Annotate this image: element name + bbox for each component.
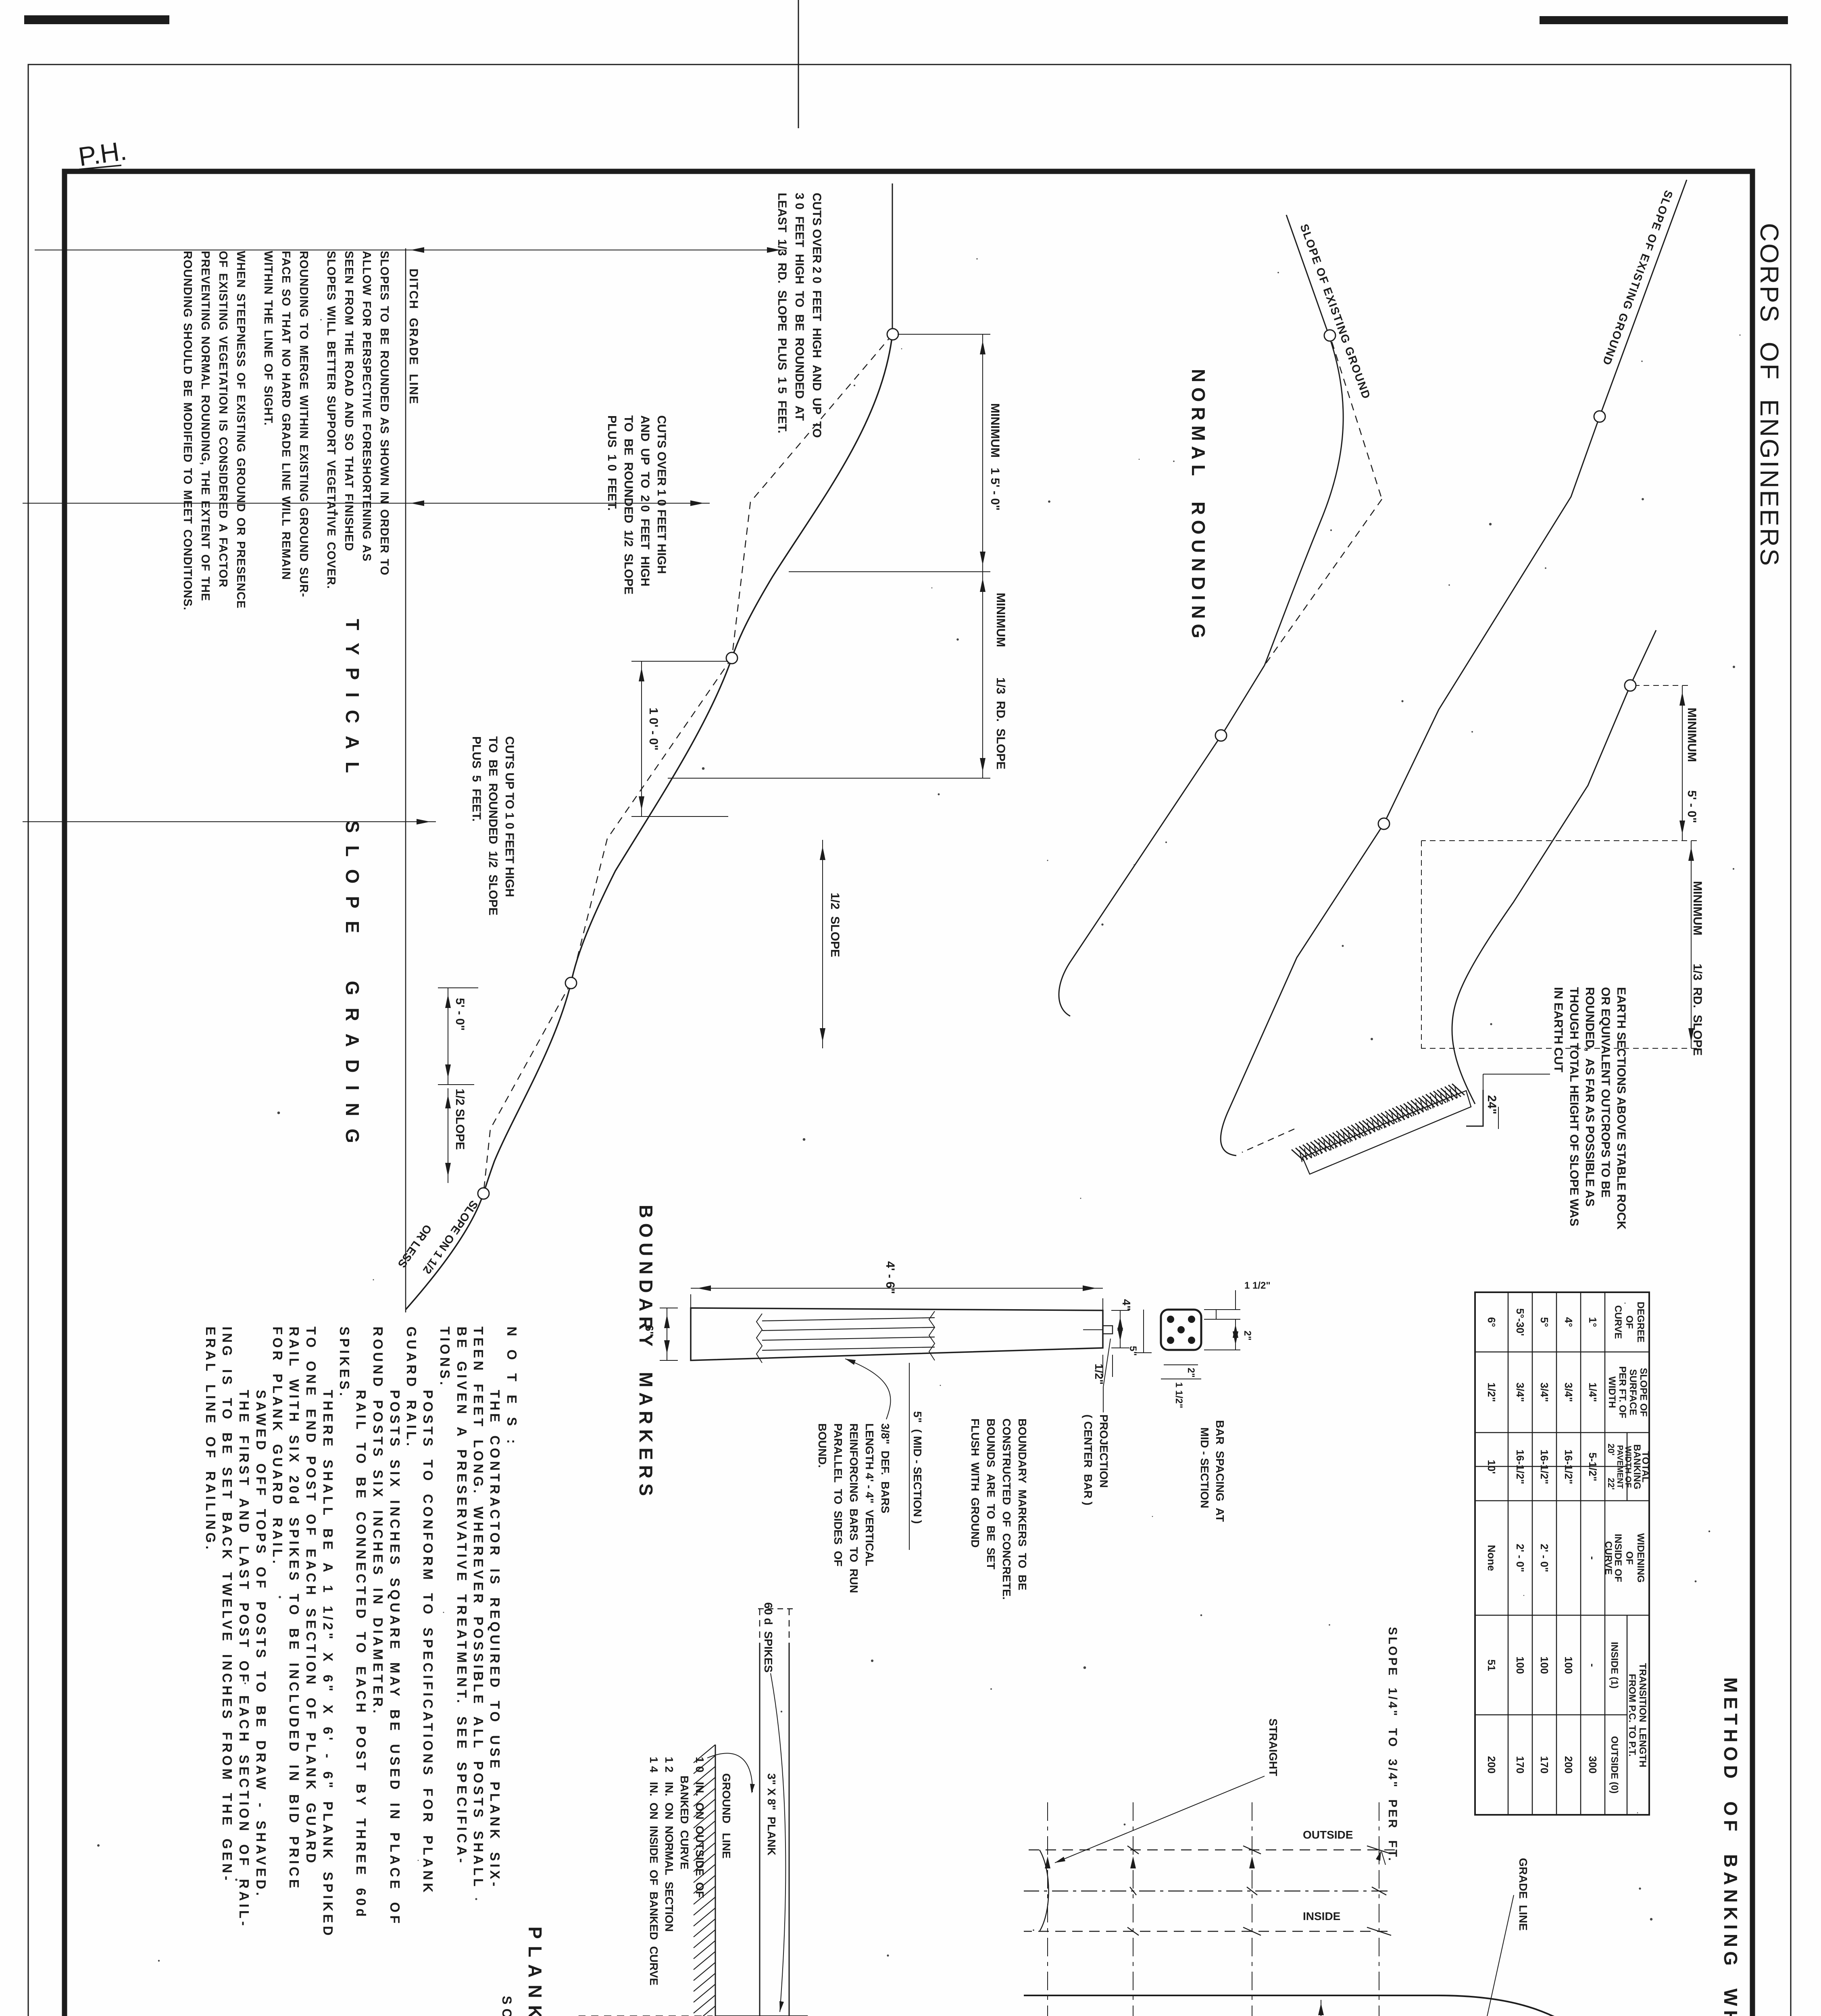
svg-text:1/2": 1/2" — [1486, 1383, 1498, 1402]
svg-text:OUTSIDE: OUTSIDE — [1303, 1829, 1353, 1841]
svg-text:3/4": 3/4" — [1538, 1383, 1550, 1402]
svg-text:PER FT. OF: PER FT. OF — [1617, 1366, 1628, 1418]
svg-text:6°: 6° — [1486, 1317, 1498, 1327]
svg-text:3" X 8" PLANK: 3" X 8" PLANK — [765, 1773, 778, 1856]
svg-text:None: None — [1486, 1545, 1498, 1571]
svg-text:OR EQUIVALENT OUTCROPS TO BE: OR EQUIVALENT OUTCROPS TO BE — [1599, 987, 1612, 1198]
svg-text:TO BE ROUNDED 1/2 SLOPE: TO BE ROUNDED 1/2 SLOPE — [622, 415, 635, 595]
svg-text:AND UP TO 2 0 FEET HIGH: AND UP TO 2 0 FEET HIGH — [638, 415, 652, 587]
svg-text:BANKING: BANKING — [1631, 1444, 1642, 1489]
svg-text:DITCH GRADE LINE: DITCH GRADE LINE — [407, 269, 420, 405]
svg-text:TO ONE END POST OF EACH SECTIO: TO ONE END POST OF EACH SECTION OF PLANK… — [304, 1327, 319, 1866]
svg-text:CONSTRUCTED OF CONCRETE.: CONSTRUCTED OF CONCRETE. — [1000, 1418, 1013, 1600]
svg-text:( CENTER BAR ): ( CENTER BAR ) — [1082, 1414, 1094, 1506]
svg-text:51: 51 — [1486, 1660, 1498, 1671]
svg-text:5": 5" — [1127, 1346, 1138, 1356]
svg-text:10': 10' — [1486, 1460, 1498, 1474]
svg-text:PLUS 5 FEET.: PLUS 5 FEET. — [470, 736, 483, 822]
svg-text:OF: OF — [1624, 1315, 1635, 1329]
svg-text:ING IS TO BE SET BACK TWELVE I: ING IS TO BE SET BACK TWELVE INCHES FROM… — [220, 1327, 235, 1883]
svg-text:THE CONTRACTOR IS REQUIRED TO: THE CONTRACTOR IS REQUIRED TO USE PLANK … — [488, 1327, 502, 1889]
svg-text:IN EARTH CUT: IN EARTH CUT — [1552, 987, 1565, 1073]
svg-text:SURFACE: SURFACE — [1627, 1369, 1638, 1416]
svg-text:5' - 0": 5' - 0" — [453, 998, 467, 1031]
svg-text:20': 20' — [1606, 1443, 1616, 1456]
svg-text:TO BE ROUNDED 1/2 SLOPE: TO BE ROUNDED 1/2 SLOPE — [486, 736, 500, 916]
svg-text:WIDTH OF: WIDTH OF — [1623, 1446, 1633, 1488]
svg-text:ERAL LINE OF RAILING.: ERAL LINE OF RAILING. — [203, 1327, 218, 1552]
svg-text:1/2": 1/2" — [1093, 1364, 1105, 1385]
svg-text:170: 170 — [1538, 1756, 1550, 1773]
svg-text:CURVE: CURVE — [1613, 1305, 1623, 1339]
svg-text:OF EXISTING VEGETATION IS CONS: OF EXISTING VEGETATION IS CONSIDERED A F… — [217, 251, 229, 587]
svg-text:N O T E S :: N O T E S : — [504, 1327, 519, 1447]
svg-text:INSIDE OF: INSIDE OF — [1613, 1534, 1623, 1582]
svg-text:EARTH SECTIONS ABOVE STABLE RO: EARTH SECTIONS ABOVE STABLE ROCK — [1615, 987, 1628, 1230]
svg-text:170: 170 — [1514, 1756, 1526, 1773]
svg-text:BOUND.: BOUND. — [816, 1423, 829, 1468]
svg-text:5' - 0": 5' - 0" — [1685, 790, 1698, 823]
svg-text:4°: 4° — [1563, 1317, 1575, 1327]
svg-text:FROM P.C. TO P.T.: FROM P.C. TO P.T. — [1627, 1674, 1638, 1756]
svg-text:6": 6" — [643, 1325, 656, 1337]
svg-text:24": 24" — [1485, 1095, 1498, 1114]
svg-text:PLUS 1 0 FEET.: PLUS 1 0 FEET. — [605, 415, 619, 511]
svg-text:POSTS TO CONFORM TO SPECIFICAT: POSTS TO CONFORM TO SPECIFICATIONS FOR P… — [421, 1327, 435, 1895]
svg-text:LENGTH 4' - 4" VERTICAL: LENGTH 4' - 4" VERTICAL — [863, 1423, 876, 1566]
svg-text:1/3 RD. SLOPE: 1/3 RD. SLOPE — [1691, 964, 1704, 1056]
svg-text:1 4 IN. ON INSIDE OF BAN: 1 4 IN. ON INSIDE OF BANKED CURVE — [648, 1757, 660, 1985]
svg-text:CURVE: CURVE — [1603, 1541, 1614, 1575]
svg-text:1 1/2": 1 1/2" — [1244, 1280, 1271, 1291]
svg-text:BOUNDS ARE TO BE SET: BOUNDS ARE TO BE SET — [985, 1418, 997, 1569]
svg-text:16-1/2": 16-1/2" — [1538, 1450, 1550, 1484]
svg-text:STRAIGHT: STRAIGHT — [1267, 1718, 1279, 1776]
svg-text:5°: 5° — [1538, 1317, 1550, 1327]
svg-text:ROUNDED, AS FAR AS POSSIBLE A: ROUNDED, AS FAR AS POSSIBLE AS — [1583, 987, 1596, 1207]
svg-text:200: 200 — [1486, 1756, 1498, 1773]
svg-text:FOR PLANK GUARD RAIL.: FOR PLANK GUARD RAIL. — [270, 1327, 285, 1566]
svg-text:DEGREE: DEGREE — [1635, 1302, 1646, 1342]
svg-text:PREVENTING NORMAL ROUNDING, TH: PREVENTING NORMAL ROUNDING, THE EXTENT O… — [199, 251, 212, 601]
svg-text:16-1/2": 16-1/2" — [1514, 1450, 1526, 1484]
svg-text:SPIKES.: SPIKES. — [337, 1327, 352, 1399]
svg-text:SLOPES TO BE ROUNDED AS SHOWN: SLOPES TO BE ROUNDED AS SHOWN IN ORDER T… — [378, 251, 391, 576]
svg-text:FLUSH WITH GROUND: FLUSH WITH GROUND — [969, 1418, 981, 1547]
svg-text:THOUGH TOTAL HEIGHT OF SLOPE W: THOUGH TOTAL HEIGHT OF SLOPE WAS — [1567, 987, 1581, 1226]
svg-text:MID - SECTION: MID - SECTION — [1198, 1427, 1211, 1508]
svg-text:ROUND POSTS SIX INCHES IN DIAM: ROUND POSTS SIX INCHES IN DIAMETER. — [371, 1327, 385, 1716]
svg-text:PARALLEL TO SIDES OF: PARALLEL TO SIDES OF — [832, 1423, 844, 1566]
svg-text:CUTS OVER 2 0 FEET HIGH AND: CUTS OVER 2 0 FEET HIGH AND UP TO — [810, 193, 823, 438]
svg-text:60 d SPIKES: 60 d SPIKES — [762, 1602, 775, 1672]
svg-text:-: - — [1587, 1664, 1599, 1667]
svg-text:3/4": 3/4" — [1563, 1383, 1575, 1402]
svg-text:THE FIRST AND LAST POST OF EAC: THE FIRST AND LAST POST OF EACH SECTION … — [237, 1327, 252, 1929]
svg-text:RAIL TO BE CONNECTED TO EACH P: RAIL TO BE CONNECTED TO EACH POST BY THR… — [354, 1327, 369, 1920]
svg-text:TRANSITION LENGTH: TRANSITION LENGTH — [1637, 1663, 1648, 1768]
svg-text:CORPS OF ENGINEERS: CORPS OF ENGINEERS — [1755, 223, 1784, 566]
svg-text:5°-30': 5°-30' — [1514, 1308, 1526, 1336]
svg-text:300: 300 — [1587, 1756, 1599, 1773]
svg-text:ROUNDING TO MERGE WITHIN EXIST: ROUNDING TO MERGE WITHIN EXISTING GROUND… — [297, 251, 310, 598]
svg-text:WIDENING: WIDENING — [1635, 1533, 1646, 1583]
svg-text:WIDTH: WIDTH — [1606, 1377, 1617, 1408]
svg-text:INSIDE: INSIDE — [1303, 1910, 1340, 1922]
svg-text:POSTS SIX INCHES SQUARE MAY BE: POSTS SIX INCHES SQUARE MAY BE USED IN P… — [388, 1327, 402, 1926]
svg-text:-: - — [1587, 1556, 1599, 1560]
svg-text:2' - 0": 2' - 0" — [1514, 1544, 1526, 1572]
svg-text:1/2 SLOPE: 1/2 SLOPE — [828, 893, 842, 957]
svg-text:REINFORCING BARS TO RUN: REINFORCING BARS TO RUN — [848, 1423, 860, 1593]
svg-text:NORMAL ROUNDING: NORMAL ROUNDING — [1188, 369, 1209, 638]
svg-text:1°: 1° — [1587, 1317, 1599, 1327]
svg-text:RAIL WITH SIX 20d SPIKES TO BE: RAIL WITH SIX 20d SPIKES TO BE INCLUDED … — [287, 1327, 302, 1891]
svg-text:5-1/2": 5-1/2" — [1587, 1452, 1599, 1481]
svg-text:MINIMUM: MINIMUM — [994, 593, 1007, 647]
svg-text:2": 2" — [1242, 1331, 1253, 1341]
svg-text:OUTSIDE (0): OUTSIDE (0) — [1609, 1736, 1620, 1794]
svg-text:BAR SPACING AT: BAR SPACING AT — [1214, 1420, 1226, 1522]
svg-text:3/8" DEF. BARS: 3/8" DEF. BARS — [879, 1423, 892, 1513]
svg-text:CUTS OVER 1 0 FEET HIGH: CUTS OVER 1 0 FEET HIGH — [655, 415, 668, 574]
svg-text:BE GIVEN A PRESERVATIVE TREATM: BE GIVEN A PRESERVATIVE TREATMENT. SEE S… — [454, 1327, 469, 1866]
svg-text:3/4": 3/4" — [1514, 1383, 1526, 1402]
svg-text:ALLOW FOR PERSPECTIVE FORESHOR: ALLOW FOR PERSPECTIVE FORESHORTENING AS — [360, 251, 373, 562]
svg-text:SAWED OFF TOPS OF POSTS TO BE: SAWED OFF TOPS OF POSTS TO BE DRAW - SHA… — [254, 1327, 269, 1899]
svg-text:1/4": 1/4" — [1587, 1383, 1599, 1402]
svg-text:THERE SHALL BE A 1 1/2" X 6" X: THERE SHALL BE A 1 1/2" X 6" X 6' - 6" P… — [321, 1327, 335, 1938]
svg-text:2": 2" — [1186, 1368, 1196, 1378]
svg-text:1 0' - 0": 1 0' - 0" — [647, 708, 660, 750]
svg-text:16-1/2": 16-1/2" — [1563, 1450, 1575, 1484]
svg-text:4": 4" — [1120, 1299, 1133, 1311]
svg-text:GRADE LINE: GRADE LINE — [1517, 1858, 1529, 1931]
svg-text:INSIDE (1): INSIDE (1) — [1609, 1642, 1620, 1689]
svg-text:200: 200 — [1563, 1756, 1575, 1773]
svg-text:1 1/2": 1 1/2" — [1173, 1382, 1184, 1408]
svg-text:MINIMUM: MINIMUM — [1691, 881, 1704, 935]
svg-text:BOUNDARY MARKERS TO BE: BOUNDARY MARKERS TO BE — [1016, 1418, 1029, 1590]
svg-text:PAVEMENT: PAVEMENT — [1615, 1445, 1624, 1489]
svg-text:2' - 0": 2' - 0" — [1538, 1544, 1550, 1572]
svg-text:1 2 IN. ON NORMAL SECTION: 1 2 IN. ON NORMAL SECTION — [663, 1757, 675, 1932]
svg-text:WHEN STEEPNESS OF EXISTING GRO: WHEN STEEPNESS OF EXISTING GROUND OR PRE… — [234, 251, 247, 609]
svg-text:GROUND LINE: GROUND LINE — [720, 1773, 733, 1859]
svg-text:TEEN FEET LONG. WHEREVER POSSI: TEEN FEET LONG. WHEREVER POSSIBLE ALL PO… — [471, 1327, 486, 1889]
svg-text:22': 22' — [1606, 1478, 1616, 1490]
svg-text:TIONS.: TIONS. — [438, 1327, 452, 1388]
svg-text:GUARD RAIL.: GUARD RAIL. — [404, 1327, 419, 1449]
svg-text:100: 100 — [1563, 1656, 1575, 1674]
svg-text:MINIMUM: MINIMUM — [1685, 708, 1698, 762]
svg-text:SLOPES WILL BETTER SUPPORT VEG: SLOPES WILL BETTER SUPPORT VEGETATIVE CO… — [325, 251, 338, 589]
svg-text:BANKED CURVE: BANKED CURVE — [678, 1757, 691, 1870]
svg-text:SLOPE OF: SLOPE OF — [1638, 1368, 1649, 1416]
svg-text:5" ( MID - SECTION ): 5" ( MID - SECTION ) — [911, 1411, 924, 1524]
svg-text:100: 100 — [1538, 1656, 1550, 1674]
svg-text:FACE SO THAT NO HARD GRADE LIN: FACE SO THAT NO HARD GRADE LINE WILL REM… — [279, 251, 292, 580]
svg-text:CUTS UP TO 1 0 FEET HIGH: CUTS UP TO 1 0 FEET HIGH — [503, 736, 516, 897]
svg-text:WITHIN THE LINE OF SIGHT.: WITHIN THE LINE OF SIGHT. — [262, 251, 275, 426]
svg-text:PROJECTION: PROJECTION — [1098, 1414, 1110, 1488]
svg-text:1/2 SLOPE: 1/2 SLOPE — [453, 1089, 467, 1150]
svg-text:4' - 6": 4' - 6" — [883, 1261, 897, 1294]
svg-text:MINIMUM 1 5' - 0": MINIMUM 1 5' - 0" — [988, 403, 1002, 510]
svg-text:100: 100 — [1514, 1656, 1526, 1674]
svg-text:OF: OF — [1624, 1551, 1635, 1564]
svg-text:SLOPE 1/4" TO 3/4" PER FT: SLOPE 1/4" TO 3/4" PER FT. — [1386, 1627, 1399, 1861]
svg-text:ROUNDING SHOULD BE MODIFIED TO: ROUNDING SHOULD BE MODIFIED TO MEET COND… — [181, 251, 194, 610]
svg-text:1 0 IN. ON OUTSIDE OF: 1 0 IN. ON OUTSIDE OF — [694, 1757, 706, 1898]
svg-text:3 0 FEET HIGH TO BE ROUND: 3 0 FEET HIGH TO BE ROUNDED AT — [793, 193, 806, 421]
svg-text:1/3 RD. SLOPE: 1/3 RD. SLOPE — [994, 677, 1007, 769]
svg-text:LEAST 1/3 RD. SLOPE PLUS: LEAST 1/3 RD. SLOPE PLUS 1 5 FEET. — [775, 193, 789, 433]
svg-text:SEEN FROM THE ROAD AND SO THAT: SEEN FROM THE ROAD AND SO THAT FINISHED — [342, 251, 355, 551]
